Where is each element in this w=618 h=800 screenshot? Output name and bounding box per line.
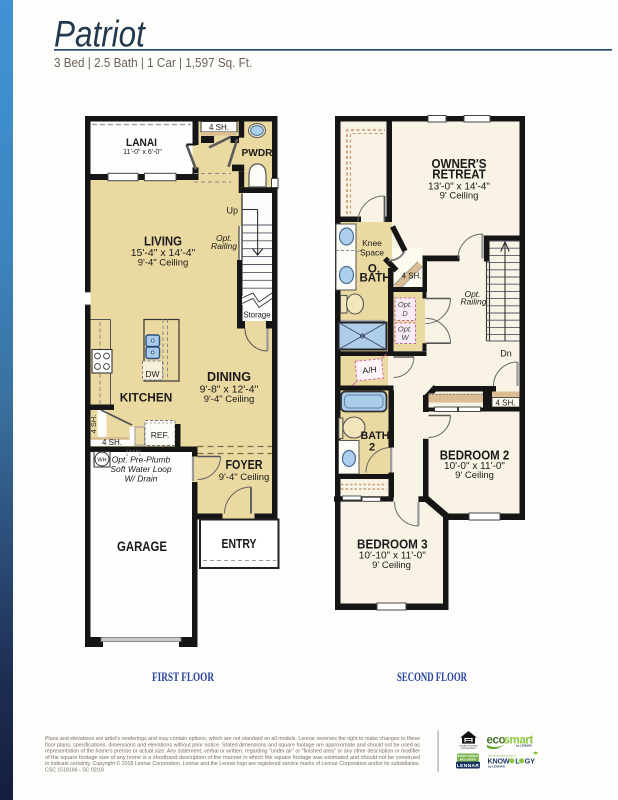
svg-text:Storage: Storage	[244, 310, 271, 320]
svg-text:Soft Water Loop: Soft Water Loop	[110, 464, 172, 474]
svg-text:LENNAR: LENNAR	[457, 763, 480, 769]
svg-text:by LENNAR: by LENNAR	[516, 744, 532, 748]
svg-text:OPPORTUNITY: OPPORTUNITY	[461, 748, 477, 750]
svg-text:4 SH.: 4 SH.	[401, 272, 421, 281]
svg-text:Railing: Railing	[461, 297, 487, 307]
svg-text:9'-4" Ceiling: 9'-4" Ceiling	[138, 258, 189, 269]
svg-text:LANAI: LANAI	[126, 137, 157, 149]
svg-text:representation of the home's p: representation of the home's precise or …	[45, 749, 420, 755]
svg-text:W: W	[401, 333, 409, 342]
svg-text:Opt.: Opt.	[398, 300, 412, 309]
svg-text:of the square footage size of: of the square footage size of any home i…	[45, 755, 420, 761]
svg-text:DINING: DINING	[207, 369, 251, 384]
svg-text:GY: GY	[525, 757, 536, 766]
svg-text:Opt. Pre-Plumb: Opt. Pre-Plumb	[112, 455, 171, 465]
svg-text:Space: Space	[360, 248, 384, 258]
svg-text:4 SH.: 4 SH.	[209, 123, 229, 132]
svg-text:2: 2	[369, 442, 375, 454]
svg-text:9' Ceiling: 9' Ceiling	[372, 560, 411, 571]
svg-text:WH: WH	[97, 458, 106, 464]
svg-text:Patriot: Patriot	[54, 14, 146, 55]
svg-text:A/H: A/H	[362, 364, 377, 375]
svg-text:DW: DW	[145, 369, 159, 379]
svg-text:Railing: Railing	[211, 241, 237, 251]
svg-text:Up: Up	[226, 206, 238, 216]
svg-text:FIRST FLOOR: FIRST FLOOR	[152, 670, 215, 684]
svg-text:D: D	[402, 309, 408, 318]
svg-text:GARAGE: GARAGE	[117, 538, 167, 554]
svg-text:FOYER: FOYER	[226, 458, 263, 472]
svg-text:9'-4" Ceiling: 9'-4" Ceiling	[204, 394, 255, 405]
svg-text:to indicate certainty. Copyrig: to indicate certainty. Copyright © 2018 …	[45, 760, 420, 767]
svg-text:REF.: REF.	[151, 430, 169, 440]
svg-text:4 SH.: 4 SH.	[102, 438, 122, 447]
svg-text:Plans and elevations are artis: Plans and elevations are artist's render…	[45, 736, 420, 742]
svg-text:by LENNAR: by LENNAR	[488, 765, 506, 769]
svg-text:9' Ceiling: 9' Ceiling	[455, 470, 494, 481]
svg-text:CSC 1518166 - SC 02/18: CSC 1518166 - SC 02/18	[45, 768, 104, 774]
svg-text:11'-0" x 6'-0": 11'-0" x 6'-0"	[123, 149, 162, 156]
svg-text:Knee: Knee	[362, 238, 382, 248]
svg-text:Dn: Dn	[500, 349, 512, 359]
svg-text:9'-4" Ceiling: 9'-4" Ceiling	[219, 472, 270, 483]
svg-text:9' Ceiling: 9' Ceiling	[440, 191, 479, 202]
svg-text:KITCHEN: KITCHEN	[120, 391, 173, 405]
svg-text:BATH: BATH	[359, 273, 390, 285]
svg-text:ENTRY: ENTRY	[222, 536, 257, 551]
svg-text:BATH: BATH	[361, 430, 390, 442]
svg-text:W/ Drain: W/ Drain	[124, 474, 157, 484]
svg-text:PWDR: PWDR	[242, 147, 273, 159]
svg-text:3 Bed | 2.5 Bath | 1 Car | 1,5: 3 Bed | 2.5 Bath | 1 Car | 1,597 Sq. Ft.	[54, 55, 252, 70]
svg-text:4 SH.: 4 SH.	[89, 415, 98, 434]
svg-text:SECOND FLOOR: SECOND FLOOR	[397, 670, 468, 684]
svg-text:floor plans, specifications, d: floor plans, specifications, dimensions …	[45, 742, 420, 748]
svg-text:INCLUDED®: INCLUDED®	[460, 757, 477, 761]
svg-text:4 SH.: 4 SH.	[495, 399, 515, 408]
svg-text:RETREAT: RETREAT	[432, 167, 486, 182]
